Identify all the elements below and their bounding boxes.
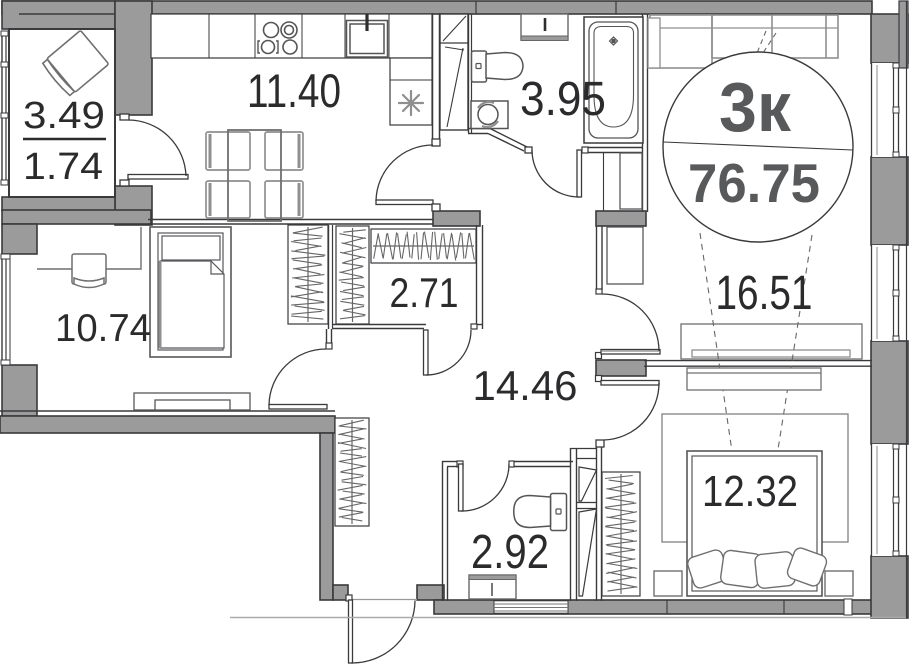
svg-text:14.46: 14.46: [473, 362, 578, 409]
svg-text:2.92: 2.92: [471, 526, 549, 579]
svg-text:3к: 3к: [719, 68, 792, 146]
svg-text:10.74: 10.74: [55, 307, 151, 350]
svg-text:1.74: 1.74: [23, 146, 103, 188]
svg-text:3.49: 3.49: [23, 95, 105, 137]
svg-text:12.32: 12.32: [702, 467, 798, 516]
svg-text:3.95: 3.95: [520, 73, 606, 126]
svg-text:16.51: 16.51: [716, 267, 813, 320]
svg-text:76.75: 76.75: [688, 152, 820, 214]
svg-text:2.71: 2.71: [390, 269, 459, 316]
svg-text:11.40: 11.40: [247, 64, 341, 117]
